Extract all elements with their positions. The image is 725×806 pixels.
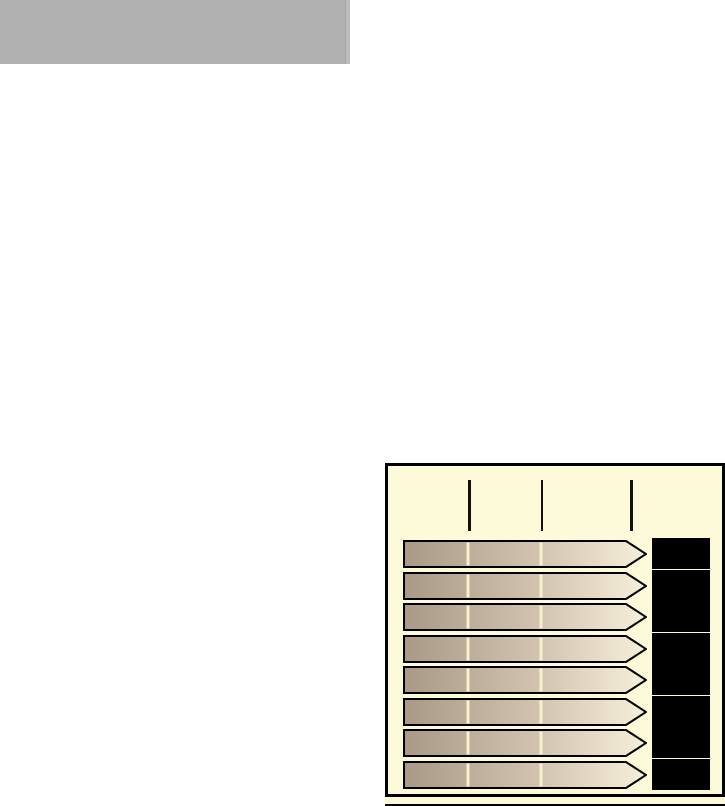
arrow-shape: [404, 699, 646, 725]
chart-row: [388, 698, 722, 726]
value-box: [652, 727, 710, 758]
chart-row: [388, 729, 722, 757]
value-box: [652, 570, 710, 601]
arrow-bar: [403, 635, 647, 663]
arrow-bar: [403, 603, 647, 631]
value-box: [652, 696, 710, 727]
chart-figure: [385, 463, 725, 806]
arrow-shape: [404, 573, 646, 599]
value-box: [652, 601, 710, 632]
value-box: [652, 538, 710, 569]
arrow-shape: [404, 730, 646, 756]
chart-border-box: [385, 463, 725, 797]
chart-row: [388, 572, 722, 600]
chart-row: [388, 603, 722, 631]
arrow-shape: [404, 636, 646, 662]
chart-row: [388, 666, 722, 694]
value-box: [652, 664, 710, 695]
value-box: [652, 759, 710, 790]
chart-row: [388, 761, 722, 789]
arrow-bar: [403, 572, 647, 600]
chart-content: [388, 466, 722, 794]
arrow-shape: [404, 604, 646, 630]
arrow-bar: [403, 761, 647, 789]
arrow-bar: [403, 729, 647, 757]
axis-tick-mark: [541, 480, 543, 531]
arrow-bar: [403, 666, 647, 694]
axis-tick-mark: [468, 480, 471, 531]
arrow-bar: [403, 540, 647, 568]
gray-placeholder-block: [0, 0, 350, 64]
arrow-bar: [403, 698, 647, 726]
placeholder-edge: [345, 0, 350, 64]
arrow-shape: [404, 541, 646, 567]
value-box: [652, 633, 710, 664]
chart-row: [388, 540, 722, 568]
axis-tick-mark: [630, 480, 633, 531]
arrow-shape: [404, 762, 646, 788]
arrow-shape: [404, 667, 646, 693]
page: [0, 0, 725, 806]
chart-row: [388, 635, 722, 663]
